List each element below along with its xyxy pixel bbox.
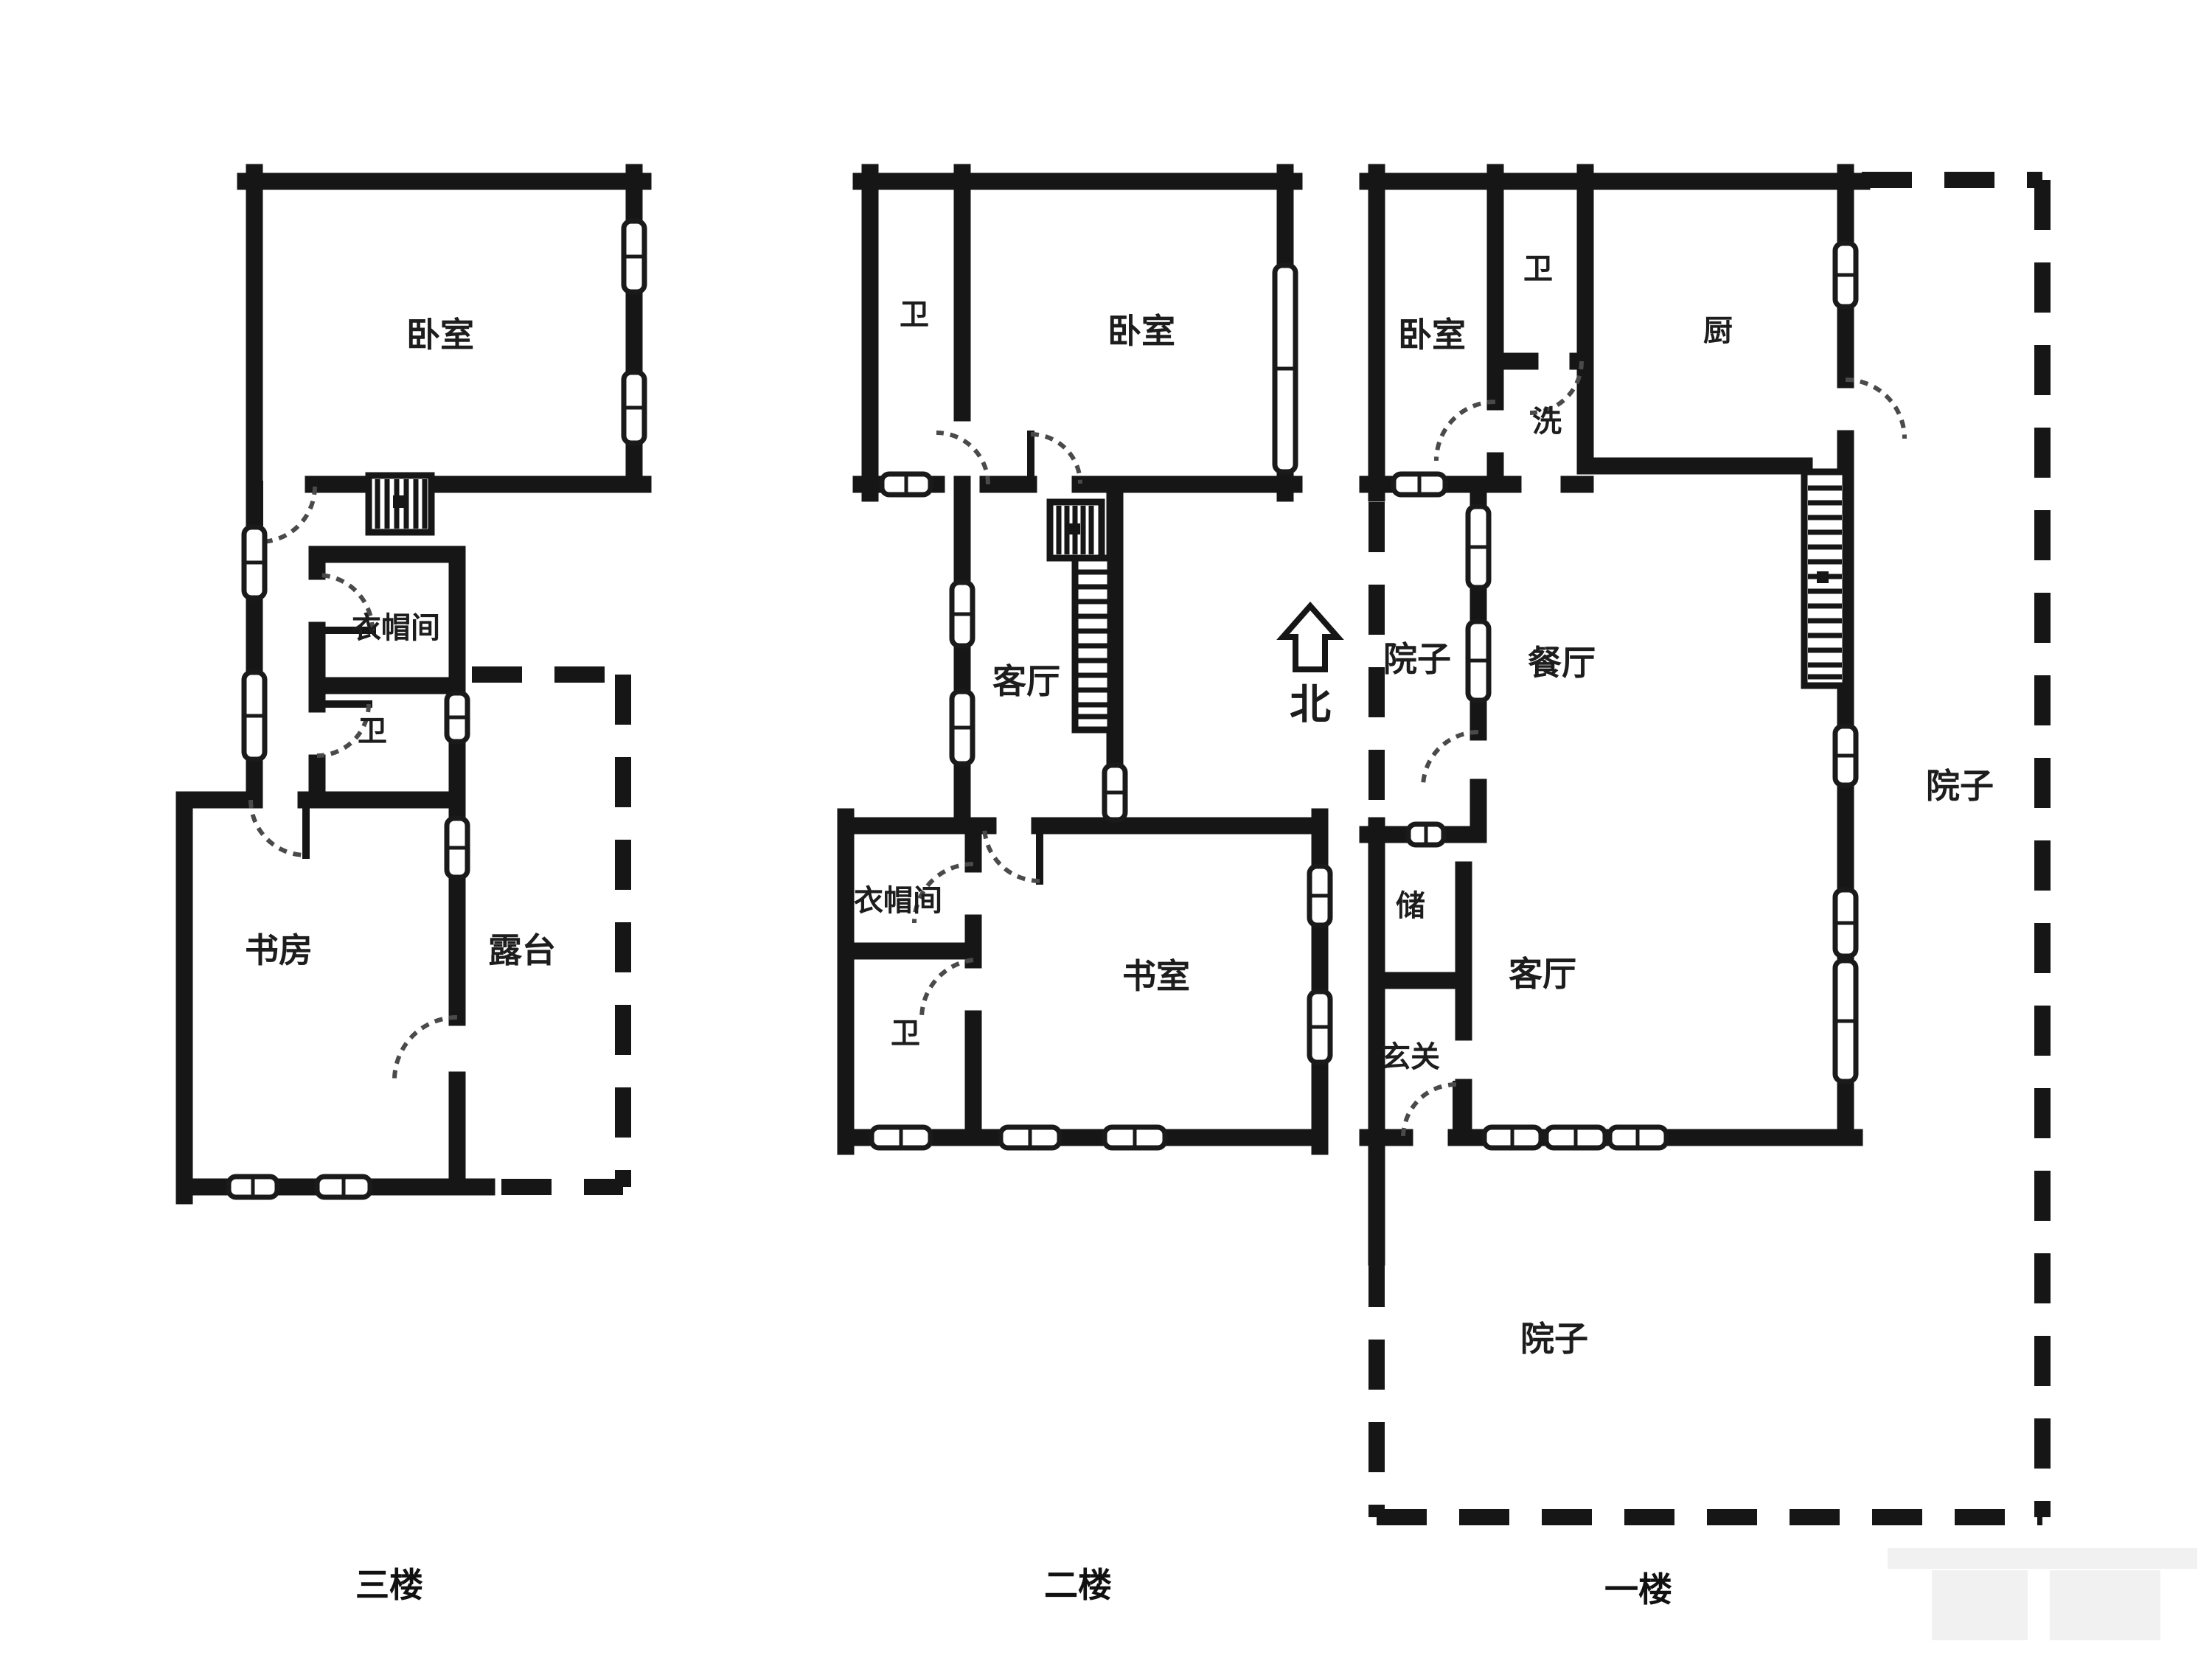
door-symbol (922, 960, 973, 1019)
room-label-living-f1: 客厅 (1509, 954, 1576, 994)
window-symbol (317, 1177, 370, 1197)
room-label-bath-top-f2: 卫 (900, 298, 929, 332)
staircase-symbol (369, 476, 431, 532)
floor3-windows (229, 221, 644, 1197)
floorplan-page: 卧室 衣帽间 卫 书房 露台 三楼 (0, 0, 2212, 1658)
window-symbol (1408, 824, 1444, 845)
window-symbol (1835, 243, 1856, 307)
room-label-living-f2: 客厅 (992, 661, 1060, 701)
room-label-dining-f1: 餐厅 (1528, 643, 1596, 683)
window-symbol (447, 693, 467, 742)
window-symbol (624, 221, 644, 292)
window-symbol (952, 582, 973, 646)
room-label-foyer-f1: 玄关 (1381, 1040, 1440, 1074)
door-symbol (1436, 402, 1495, 461)
room-label-bath-bottom-f2: 卫 (891, 1017, 920, 1051)
watermark-artifact (1888, 1548, 2197, 1640)
window-symbol (1310, 992, 1330, 1062)
room-label-yard-right-f1: 院子 (1926, 766, 1994, 806)
room-label-kitchen-f1: 厨 (1703, 314, 1733, 348)
room-label-study-f2: 书室 (1122, 956, 1190, 996)
floor3-caption: 三楼 (355, 1565, 423, 1605)
room-label-yard-side-f1: 院子 (1383, 639, 1451, 679)
room-label-yard-bottom-f1: 院子 (1520, 1319, 1588, 1359)
window-symbol (1610, 1127, 1666, 1148)
window-symbol (1546, 1127, 1605, 1148)
window-symbol (952, 692, 973, 764)
window-symbol (1001, 1127, 1060, 1148)
window-symbol (1468, 506, 1489, 588)
door-symbol (394, 1017, 457, 1080)
window-symbol (1105, 1127, 1165, 1148)
room-label-wash-f1: 洗 (1532, 405, 1562, 439)
floor3-doors (251, 484, 457, 1080)
window-symbol (244, 672, 265, 759)
north-compass: 北 (1283, 606, 1338, 729)
window-symbol (244, 527, 265, 598)
room-label-terrace-f3: 露台 (488, 930, 556, 970)
room-label-bath-f1: 卫 (1523, 252, 1553, 286)
floorplan-canvas: 卧室 衣帽间 卫 书房 露台 三楼 (0, 0, 2212, 1658)
window-symbol (1835, 961, 1856, 1081)
room-label-study-f3: 书房 (245, 930, 313, 970)
north-arrow-icon (1283, 606, 1338, 669)
room-label-storage-f1: 储 (1396, 889, 1425, 923)
window-symbol (1105, 765, 1125, 820)
door-symbol (260, 484, 315, 542)
room-label-bedroom-f2: 卧室 (1107, 311, 1175, 351)
room-label-cloakroom-f3: 衣帽间 (352, 611, 440, 645)
staircase-symbol (1804, 472, 1846, 686)
window-symbol (1394, 474, 1445, 495)
room-label-bedroom-f3: 卧室 (406, 315, 474, 355)
window-symbol (624, 372, 644, 443)
room-label-bedroom-f1: 卧室 (1398, 315, 1466, 355)
room-label-cloakroom-f2: 衣帽间 (854, 884, 942, 918)
window-symbol (882, 474, 931, 495)
window-symbol (1484, 1127, 1541, 1148)
floor2-caption: 二楼 (1044, 1565, 1112, 1605)
window-symbol (1835, 726, 1856, 785)
floor1-plan: 卧室 卫 洗 厨 院子 餐厅 储 客厅 玄关 院子 院子 一楼 (1368, 173, 2042, 1609)
floor2-plan: 卫 卧室 客厅 衣帽间 卫 书室 二楼 (846, 173, 1330, 1605)
door-symbol (1846, 380, 1905, 439)
window-symbol (872, 1127, 931, 1148)
floor1-courtyard-boundary (1377, 180, 2042, 1517)
window-symbol (229, 1177, 277, 1197)
window-symbol (447, 818, 467, 877)
floor1-caption: 一楼 (1604, 1570, 1672, 1609)
window-symbol (1835, 890, 1856, 956)
window-symbol (1468, 621, 1489, 700)
window-symbol (1310, 866, 1330, 925)
north-label: 北 (1290, 681, 1331, 729)
floor3-plan: 卧室 衣帽间 卫 书房 露台 三楼 (184, 173, 644, 1605)
room-label-bath-f3: 卫 (358, 714, 387, 748)
window-symbol (1275, 265, 1295, 472)
